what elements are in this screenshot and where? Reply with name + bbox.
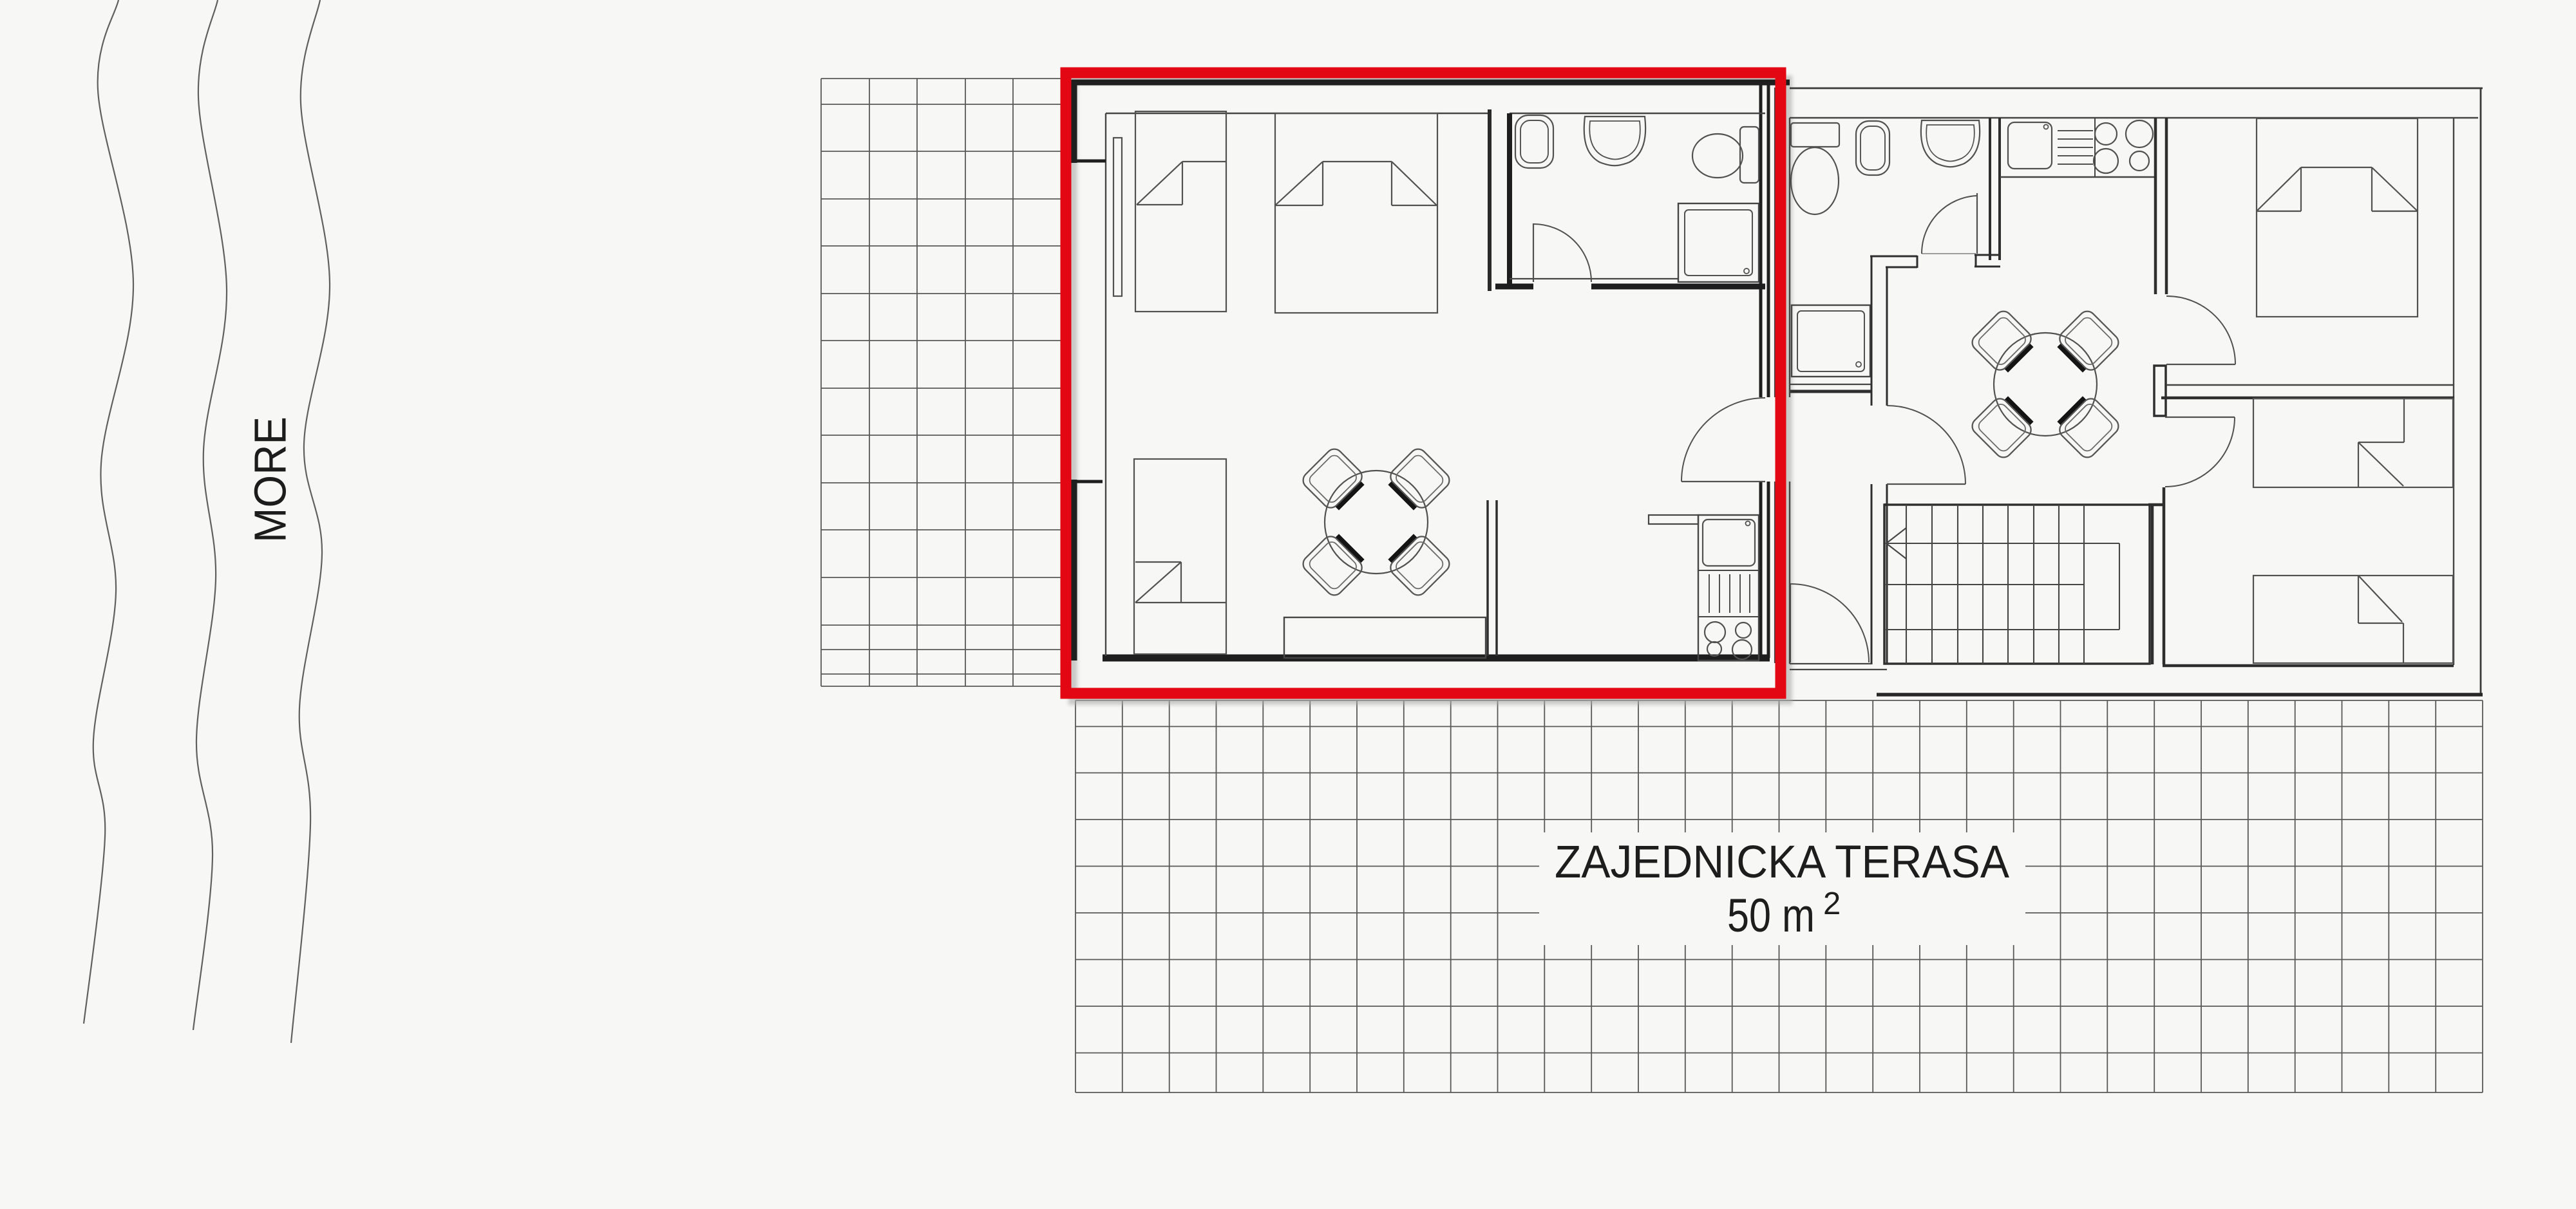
svg-text:50 m: 50 m — [1727, 890, 1815, 942]
svg-text:ZAJEDNICKA TERASA: ZAJEDNICKA TERASA — [1555, 837, 2010, 888]
svg-text:2: 2 — [1823, 886, 1841, 921]
svg-text:MORE: MORE — [245, 417, 295, 543]
